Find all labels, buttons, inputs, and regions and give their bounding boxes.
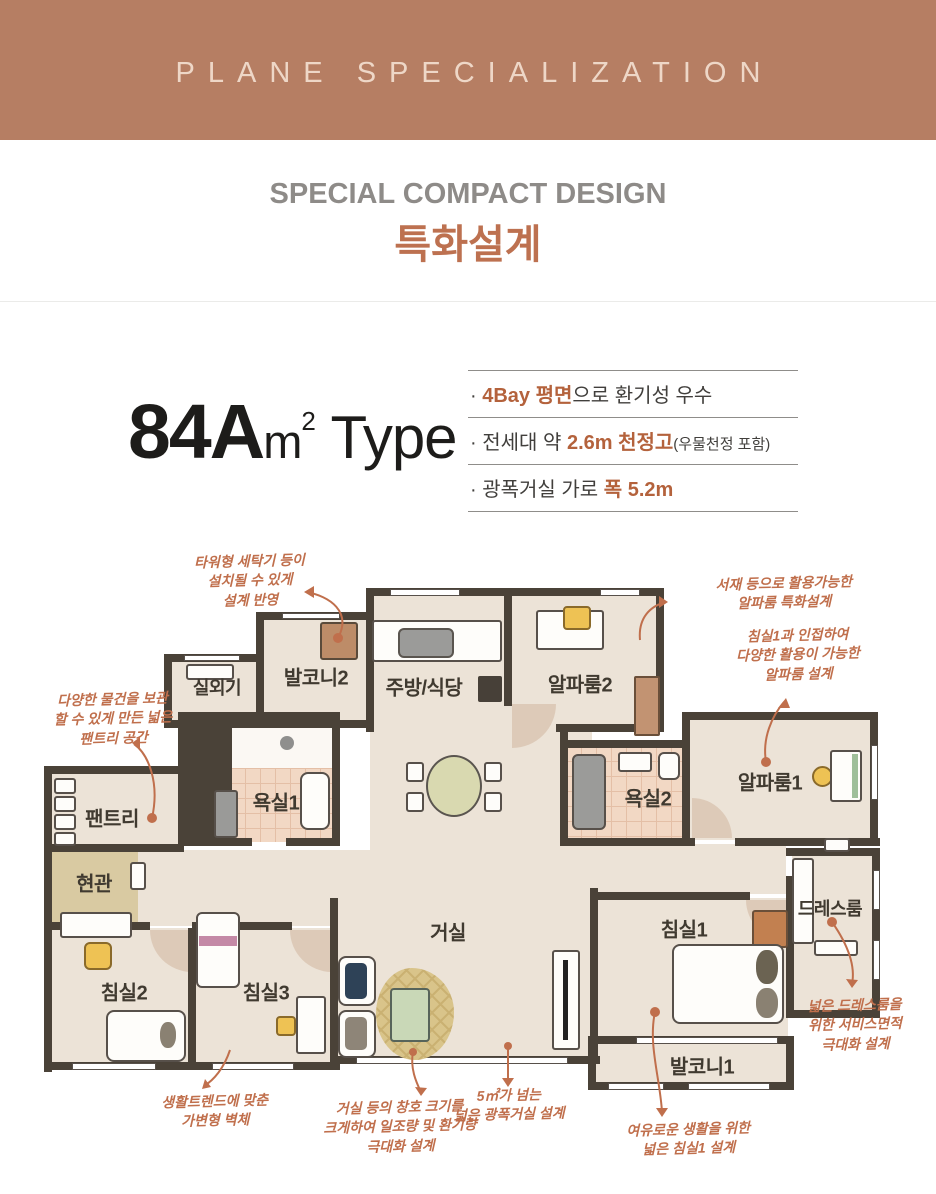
shower-drain [280, 736, 294, 750]
alpha1-desk-accent [852, 754, 858, 798]
bed3-bed [196, 912, 240, 988]
floor-plan: 실외기 발코니2 주방/식당 알파룸2 팬트리 욕실1 욕실2 알파룸1 현관 … [0, 540, 936, 1194]
room-label-pantry: 팬트리 [85, 803, 139, 832]
feature-list: · 4Bay 평면으로 환기성 우수 · 전세대 약 2.6m 천정고(우물천정… [468, 370, 798, 512]
bathtub [300, 772, 330, 830]
room-label-bed1: 침실1 [661, 914, 707, 943]
bullet: · [470, 432, 477, 454]
washer [320, 622, 358, 660]
bed3-desk [296, 996, 326, 1054]
wall [44, 766, 52, 1072]
wall [682, 712, 878, 720]
annotation-alpha2: 서재 등으로 활용가능한 알파룸 특화설계 [664, 571, 905, 616]
bullet: · [470, 385, 477, 407]
room-label-alpha2: 알파룸2 [548, 669, 612, 698]
bed3-stool [276, 1016, 296, 1036]
window [282, 613, 340, 619]
feature-item: · 광폭거실 가로 폭 5.2m [468, 464, 798, 512]
pillow [756, 950, 778, 984]
alpha2-stool [563, 606, 591, 630]
alpha2-closet [634, 676, 660, 736]
wall [560, 732, 568, 846]
unit-type-title: 84Am2 Type [128, 388, 457, 477]
window [356, 1057, 568, 1064]
wall [504, 588, 512, 706]
room-label-bed2: 침실2 [101, 977, 147, 1006]
annotation-movable-wall: 생활트렌드에 맞춘 가변형 벽체 [108, 1089, 323, 1133]
room-label-dressroom: 드레스룸 [798, 895, 862, 921]
unit-type-label: Type [316, 404, 457, 471]
wall [188, 928, 196, 1070]
annotation-alpha1: 침실1과 인접하여 다양한 활용이 가능한 알파룸 설계 [687, 623, 908, 687]
window [873, 870, 880, 910]
room-label-bath1: 욕실1 [253, 787, 299, 816]
poster-page: PLANE SPECIALIZATION SPECIAL COMPACT DES… [0, 0, 936, 1194]
window [212, 1063, 294, 1070]
annotation-bed1: 여유로운 생활을 위한 넓은 침실1 설계 [576, 1117, 802, 1162]
wall [590, 892, 750, 900]
wall [224, 712, 340, 720]
room-label-kitchen: 주방/식당 [386, 672, 463, 701]
wall [332, 712, 340, 846]
window [72, 1063, 156, 1070]
window [184, 655, 240, 661]
chair [484, 792, 502, 812]
feature-item: · 전세대 약 2.6m 천정고(우물천정 포함) [468, 417, 798, 464]
sofa-cushion [345, 1017, 367, 1050]
window [871, 745, 878, 800]
bullet: · [470, 479, 477, 501]
entry-door [130, 862, 146, 890]
wall [256, 612, 264, 728]
chair [406, 762, 424, 782]
bed3-blanket [199, 936, 237, 946]
room-label-bath2: 욕실2 [625, 783, 671, 812]
wall [224, 838, 252, 846]
wall [560, 740, 690, 748]
room-label-entry: 현관 [76, 868, 112, 897]
page-title: PLANE SPECIALIZATION [0, 0, 936, 140]
unit-size: 84A [128, 389, 263, 475]
wall [330, 898, 338, 1070]
window [608, 1083, 664, 1090]
bed2-chair [84, 942, 112, 970]
room-label-balcony1: 발코니1 [670, 1051, 734, 1080]
dress-closet [824, 838, 850, 852]
wall [588, 1036, 596, 1090]
annotation-washer: 타워형 세탁기 등이 설치될 수 있게 설계 반영 [147, 549, 352, 612]
wall [682, 712, 690, 846]
feature-item: · 4Bay 평면으로 환기성 우수 [468, 370, 798, 417]
corridor-floor [558, 844, 786, 894]
section-divider [0, 301, 936, 302]
tv-screen [563, 960, 568, 1040]
dress-closet [814, 940, 858, 956]
subtitle-korean: 특화설계 [0, 212, 936, 270]
laundry-appliance [214, 790, 238, 838]
toilet [658, 752, 680, 780]
wall [560, 838, 695, 846]
chair [484, 762, 502, 782]
sofa-cushion [345, 963, 367, 999]
room-label-bed3: 침실3 [243, 977, 289, 1006]
room-label-balcony2: 발코니2 [284, 662, 348, 691]
wall [286, 838, 340, 846]
living-table [390, 988, 430, 1042]
annotation-wide-living: 5㎡가 넘는 넓은 광폭거실 설계 [424, 1084, 595, 1127]
unit-measure: m [263, 415, 301, 468]
dining-table [426, 755, 482, 817]
bed2-desk [60, 912, 132, 938]
shower-booth [572, 754, 606, 830]
kitchen-sink [398, 628, 454, 658]
bath2-sink [618, 752, 652, 772]
chair [406, 792, 424, 812]
stove [478, 676, 502, 702]
window [688, 1083, 770, 1090]
room-label-alpha1: 알파룸1 [738, 767, 802, 796]
pantry-shelf [54, 814, 76, 830]
subtitle-english: SPECIAL COMPACT DESIGN [0, 178, 936, 211]
window [873, 940, 880, 980]
unit-measure-sup: 2 [301, 406, 315, 436]
pantry-shelf [54, 796, 76, 812]
bed1-headboard [752, 910, 788, 948]
pillow [160, 1022, 176, 1048]
annotation-dressroom: 넓은 드레스룸을 위한 서비스면적 극대화 설계 [747, 993, 936, 1057]
pantry-shelf [54, 832, 76, 846]
window [390, 589, 460, 596]
wall [44, 766, 184, 774]
wall [735, 838, 880, 846]
annotation-pantry: 다양한 물건을 보관 할 수 있게 만든 넓은 팬트리 공간 [5, 687, 220, 751]
pantry-shelf [54, 778, 76, 794]
room-label-living: 거실 [430, 917, 466, 946]
window [600, 589, 640, 596]
